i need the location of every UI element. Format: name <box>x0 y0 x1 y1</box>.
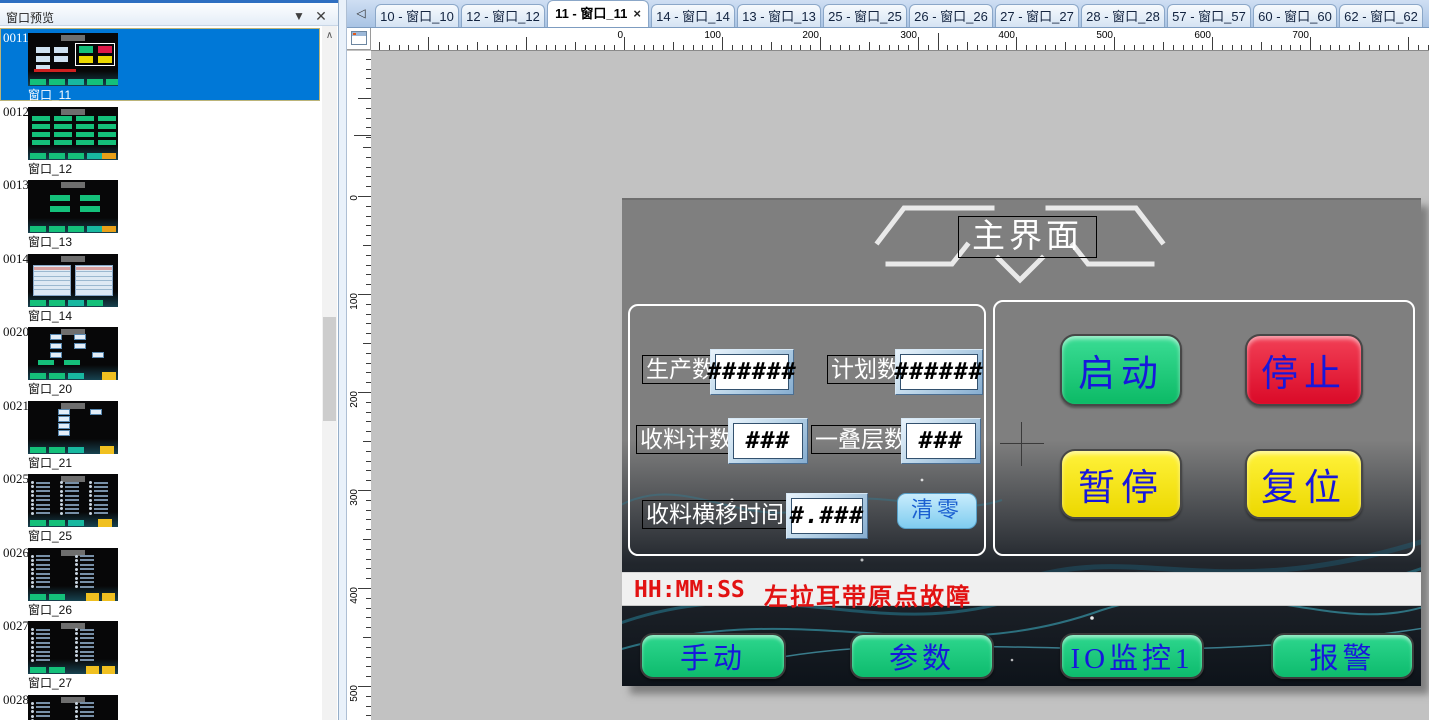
ruler-tick <box>928 45 929 50</box>
start-button[interactable]: 启动 <box>1060 334 1182 406</box>
ruler-tick <box>751 45 752 50</box>
window-list-item-0021[interactable]: 0021窗口_21 <box>0 396 320 469</box>
window-list-item-0028[interactable]: 0028窗口_28 <box>0 690 320 720</box>
ruler-tick <box>742 45 743 50</box>
ruler-label: 400 <box>998 30 1015 41</box>
ruler-tick <box>1290 45 1291 50</box>
window-thumbnail <box>28 327 118 380</box>
ruler-label: 200 <box>349 391 360 408</box>
pause-button[interactable]: 暂停 <box>1060 449 1182 519</box>
ruler-cursor-marker <box>354 135 371 136</box>
tab-label: 10 - 窗口_10 <box>380 9 454 24</box>
tab-2525[interactable]: 25 - 窗口_25 <box>823 4 907 27</box>
stack-layers-value: ### <box>906 423 976 459</box>
ruler-tick <box>879 45 880 50</box>
ruler-label: 100 <box>704 30 721 41</box>
ruler-tick <box>408 45 409 50</box>
ruler-tick <box>1143 45 1144 50</box>
ruler-tick <box>1300 45 1301 50</box>
tab-1010[interactable]: 10 - 窗口_10 <box>375 4 459 27</box>
ruler-tick <box>418 45 419 50</box>
ruler-tick <box>977 45 978 50</box>
ruler-cursor-marker <box>938 33 939 50</box>
ruler-tick <box>1085 45 1086 50</box>
panel-splitter[interactable] <box>339 0 347 720</box>
window-label: 窗口_21 <box>28 454 72 471</box>
ruler-tick <box>761 45 762 50</box>
ruler-tick <box>1006 45 1007 50</box>
ruler-tick <box>1212 37 1213 50</box>
window-thumbnail <box>28 621 118 674</box>
ruler-tick <box>1388 45 1389 50</box>
panel-header: 窗口预览 ▼ ✕ <box>0 0 338 26</box>
ruler-tick <box>781 45 782 50</box>
panel-title: 窗口预览 <box>6 9 54 26</box>
transfer-time-value: #.### <box>791 498 863 534</box>
ruler-tick <box>506 45 507 50</box>
ruler-tick <box>791 45 792 50</box>
ruler-tick <box>467 45 468 50</box>
ruler-tick <box>918 37 919 50</box>
io-monitor-button[interactable]: IO监控1 <box>1060 633 1204 679</box>
production-count-field[interactable]: ###### <box>710 349 794 395</box>
ruler-tick <box>693 45 694 50</box>
ruler-label: 300 <box>349 489 360 506</box>
window-id: 0020 <box>3 324 29 340</box>
ruler-tick <box>1055 45 1056 50</box>
ruler-tick <box>1173 45 1174 50</box>
ruler-tick <box>820 37 821 50</box>
ruler-tick <box>634 45 635 50</box>
ruler-tick <box>644 45 645 50</box>
ruler-tick <box>1281 45 1282 50</box>
ruler-tick <box>653 45 654 50</box>
window-label: 窗口_12 <box>28 160 72 177</box>
stop-button[interactable]: 停止 <box>1245 334 1363 406</box>
ruler-tick <box>1359 42 1360 50</box>
status-time: HH:MM:SS <box>634 577 745 603</box>
ruler-tick <box>1036 45 1037 50</box>
ruler-tick <box>363 245 371 246</box>
horizontal-ruler: 0100200300400500600700 <box>371 28 1429 51</box>
ruler-tick <box>996 45 997 50</box>
ruler-tick <box>1016 37 1017 50</box>
transfer-time-label: 收料横移时间 <box>642 500 788 529</box>
ruler-tick <box>575 42 576 50</box>
hmi-editor-window: 窗口预览 ▼ ✕ 0011窗口_110012窗口_120013窗口_130014… <box>0 0 1429 720</box>
ruler-tick <box>614 45 615 50</box>
ruler-tick <box>565 45 566 50</box>
plan-count-label: 计划数 <box>827 355 904 384</box>
ruler-tick <box>947 45 948 50</box>
ruler-tick <box>732 45 733 50</box>
tab-6060[interactable]: 60 - 窗口_60 <box>1253 4 1337 27</box>
ruler-tick <box>448 45 449 50</box>
ruler-tick <box>1379 45 1380 50</box>
ruler-tick <box>859 45 860 50</box>
ruler-tick <box>849 45 850 50</box>
window-id: 0014 <box>3 251 29 267</box>
ruler-tick <box>1232 45 1233 50</box>
status-message: 左拉耳带原点故障 <box>764 577 972 612</box>
ruler-tick <box>840 45 841 50</box>
alarm-status-bar[interactable]: HH:MM:SS 左拉耳带原点故障 <box>622 572 1421 606</box>
ruler-tick <box>624 37 625 50</box>
ruler-label: 700 <box>1292 30 1309 41</box>
ruler-tick <box>1192 45 1193 50</box>
tab-label: 60 - 窗口_60 <box>1258 9 1332 24</box>
ruler-tick <box>1026 45 1027 50</box>
tab-bar: ◁ 10 - 窗口_1012 - 窗口_1211 - 窗口_11×14 - 窗口… <box>347 0 1429 28</box>
ruler-label: 600 <box>1194 30 1211 41</box>
control-buttons-panel[interactable]: 启动停止暂停复位 <box>993 300 1415 556</box>
transfer-time-field[interactable]: #.### <box>786 493 868 539</box>
ruler-label: 0 <box>349 195 360 201</box>
window-list-item-0020[interactable]: 0020窗口_20 <box>0 322 320 395</box>
ruler-tick <box>1183 45 1184 50</box>
ruler-tick <box>1114 37 1115 50</box>
window-thumbnail <box>28 401 118 454</box>
ruler-tick <box>1349 45 1350 50</box>
ruler-tick <box>957 45 958 50</box>
tab-label: 27 - 窗口_27 <box>1000 9 1074 24</box>
tab-5757[interactable]: 57 - 窗口_57 <box>1167 4 1251 27</box>
tab-6262[interactable]: 62 - 窗口_62 <box>1339 4 1423 27</box>
params-button[interactable]: 参数 <box>850 633 994 679</box>
ruler-tick <box>1045 45 1046 50</box>
scrollbar-thumb[interactable] <box>323 317 336 421</box>
ruler-tick <box>810 45 811 50</box>
window-thumbnail <box>28 474 118 527</box>
tab-1212[interactable]: 12 - 窗口_12 <box>461 4 545 27</box>
ruler-tick <box>1320 45 1321 50</box>
window-list-item-0012[interactable]: 0012窗口_12 <box>0 102 320 175</box>
ruler-tick <box>1163 42 1164 50</box>
ruler-label: 0 <box>617 30 623 41</box>
ruler-tick <box>487 45 488 50</box>
ruler-tick <box>363 637 371 638</box>
ruler-tick <box>1261 42 1262 50</box>
ruler-tick <box>595 45 596 50</box>
window-id: 0027 <box>3 618 29 634</box>
ruler-tick <box>477 42 478 50</box>
ruler-tick <box>771 42 772 50</box>
ruler-tick <box>1271 45 1272 50</box>
ruler-label: 500 <box>1096 30 1113 41</box>
ruler-tick <box>363 539 371 540</box>
ruler-tick <box>585 45 586 50</box>
ruler-tick <box>830 45 831 50</box>
ruler-tick <box>683 45 684 50</box>
ruler-tick <box>800 45 801 50</box>
vertical-ruler: 0100200300400500 <box>347 51 372 720</box>
window-list-item-0027[interactable]: 0027窗口_27 <box>0 616 320 689</box>
production-fields-panel[interactable]: 清零 生产数######计划数######收料计数###一叠层数###收料横移时… <box>628 304 986 556</box>
ruler-label: 100 <box>349 293 360 310</box>
ruler-tick <box>1104 45 1105 50</box>
ruler-corner <box>347 28 371 50</box>
ruler-tick <box>1418 45 1419 50</box>
tab-1313[interactable]: 13 - 窗口_13 <box>737 4 821 27</box>
tab-label: 13 - 窗口_13 <box>742 9 816 24</box>
plan-count-field[interactable]: ###### <box>895 349 983 395</box>
window-id: 0013 <box>3 177 29 193</box>
plan-count-value: ###### <box>900 354 978 390</box>
reset-button[interactable]: 复位 <box>1245 449 1363 519</box>
tab-1111[interactable]: 11 - 窗口_11× <box>547 0 649 27</box>
collect-count-field[interactable]: ### <box>728 418 808 464</box>
window-thumbnail <box>28 695 118 720</box>
window-thumbnail <box>28 107 118 160</box>
ruler-tick <box>399 45 400 50</box>
ruler-tick <box>389 45 390 50</box>
ruler-tick <box>663 45 664 50</box>
ruler-label: 500 <box>349 685 360 702</box>
window-id: 0025 <box>3 471 29 487</box>
window-label: 窗口_27 <box>28 674 72 691</box>
ruler-tick <box>1428 45 1429 50</box>
alarm-button[interactable]: 报警 <box>1271 633 1414 679</box>
ruler-tick <box>967 42 968 50</box>
stack-layers-label: 一叠层数 <box>811 425 911 454</box>
ruler-tick <box>1075 45 1076 50</box>
window-thumbnail <box>28 548 118 601</box>
ruler-tick <box>869 42 870 50</box>
ruler-tick <box>536 45 537 50</box>
window-list-item-0025[interactable]: 0025窗口_25 <box>0 469 320 542</box>
window-label: 窗口_20 <box>28 380 72 397</box>
window-label: 窗口_11 <box>28 86 71 103</box>
hmi-screen[interactable]: 主界面 清零 生产数######计划数######收料计数###一叠层数###收… <box>622 198 1421 686</box>
ruler-tick <box>1369 45 1370 50</box>
ruler-tick <box>898 45 899 50</box>
ruler-tick <box>1398 45 1399 50</box>
ruler-tick <box>1339 45 1340 50</box>
ruler-tick <box>702 45 703 50</box>
ruler-tick <box>712 45 713 50</box>
ruler-tick <box>908 45 909 50</box>
window-list-item-0011[interactable]: 0011窗口_11 <box>0 28 320 101</box>
tab-label: 28 - 窗口_28 <box>1086 9 1160 24</box>
window-label: 窗口_14 <box>28 307 72 324</box>
list-scrollbar[interactable]: ∧ <box>322 26 337 720</box>
ruler-tick <box>428 37 429 50</box>
window-id: 0012 <box>3 104 29 120</box>
window-label: 窗口_13 <box>28 233 72 250</box>
tab-label: 57 - 窗口_57 <box>1172 9 1246 24</box>
window-label: 窗口_26 <box>28 601 72 618</box>
window-list-item-0014[interactable]: 0014窗口_14 <box>0 249 320 322</box>
chevron-down-icon[interactable]: ▼ <box>290 7 308 25</box>
ruler-tick <box>363 343 371 344</box>
ruler-tick <box>673 42 674 50</box>
ruler-tick <box>1222 45 1223 50</box>
close-icon[interactable]: ✕ <box>312 7 330 25</box>
ruler-tick <box>1134 45 1135 50</box>
ruler-tick <box>722 37 723 50</box>
window-thumbnail <box>28 33 118 86</box>
tab-label: 25 - 窗口_25 <box>828 9 902 24</box>
ruler-tick <box>497 45 498 50</box>
design-canvas[interactable]: 主界面 清零 生产数######计划数######收料计数###一叠层数###收… <box>371 51 1429 720</box>
window-thumbnail <box>28 180 118 233</box>
ruler-tick <box>526 37 527 50</box>
window-label: 窗口_25 <box>28 527 72 544</box>
ruler-tick <box>1251 45 1252 50</box>
tab-2828[interactable]: 28 - 窗口_28 <box>1081 4 1165 27</box>
tab-2626[interactable]: 26 - 窗口_26 <box>909 4 993 27</box>
ruler-tick <box>358 98 371 99</box>
window-id: 0026 <box>3 545 29 561</box>
ruler-tick <box>1094 45 1095 50</box>
ruler-label: 400 <box>349 587 360 604</box>
window-preview-panel: 窗口预览 ▼ ✕ 0011窗口_110012窗口_120013窗口_130014… <box>0 0 339 720</box>
ruler-tick <box>1124 45 1125 50</box>
ruler-tick <box>363 147 371 148</box>
tab-label: 62 - 窗口_62 <box>1344 9 1418 24</box>
ruler-tick <box>1202 45 1203 50</box>
ruler-tick <box>1065 42 1066 50</box>
ruler-tick <box>987 45 988 50</box>
ruler-label: 300 <box>900 30 917 41</box>
tab-2727[interactable]: 27 - 窗口_27 <box>995 4 1079 27</box>
scroll-up-icon[interactable]: ∧ <box>322 28 337 44</box>
ruler-tick <box>1241 45 1242 50</box>
screen-title[interactable]: 主界面 <box>958 216 1097 258</box>
window-thumbnail <box>28 254 118 307</box>
ruler-tick <box>1310 37 1311 50</box>
window-id: 0021 <box>3 398 29 414</box>
ruler-tick <box>604 45 605 50</box>
ruler-tick <box>457 45 458 50</box>
window-id: 0011 <box>3 30 29 46</box>
tab-close-icon[interactable]: × <box>633 1 641 27</box>
tab-label: 14 - 窗口_14 <box>656 9 730 24</box>
ruler-tick <box>1153 45 1154 50</box>
window-list: 0011窗口_110012窗口_120013窗口_130014窗口_140020… <box>0 26 322 720</box>
window-list-item-0013[interactable]: 0013窗口_13 <box>0 175 320 248</box>
tab-scroll-left-icon[interactable]: ◁ <box>347 0 375 27</box>
ruler-tick <box>1408 37 1409 50</box>
tab-label: 12 - 窗口_12 <box>466 9 540 24</box>
clear-button[interactable]: 清零 <box>897 493 977 529</box>
collect-count-label: 收料计数 <box>636 425 736 454</box>
production-count-value: ###### <box>715 354 789 390</box>
ruler-tick <box>379 42 380 50</box>
manual-button[interactable]: 手动 <box>640 633 786 679</box>
ruler-tick <box>546 45 547 50</box>
ruler-tick <box>1330 45 1331 50</box>
ruler-tick <box>363 441 371 442</box>
ruler-tick <box>438 45 439 50</box>
ruler-tick <box>516 45 517 50</box>
collect-count-value: ### <box>733 423 803 459</box>
stack-layers-field[interactable]: ### <box>901 418 981 464</box>
ruler-tick <box>889 45 890 50</box>
tab-label: 11 - 窗口_11 <box>555 6 627 21</box>
ruler-label: 200 <box>802 30 819 41</box>
window-icon <box>351 31 367 45</box>
tab-label: 26 - 窗口_26 <box>914 9 988 24</box>
ruler-tick <box>555 45 556 50</box>
window-id: 0028 <box>3 692 29 708</box>
tab-1414[interactable]: 14 - 窗口_14 <box>651 4 735 27</box>
window-list-item-0026[interactable]: 0026窗口_26 <box>0 543 320 616</box>
